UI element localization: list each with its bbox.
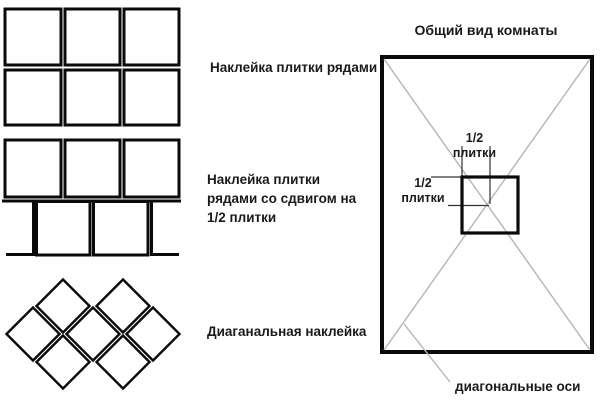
- pattern-offset-label: Наклейка плитки рядами со сдвигом на 1/2…: [207, 170, 356, 227]
- pattern-rows: [5, 9, 179, 125]
- diamond-tile: [127, 308, 180, 361]
- pattern-rows-label: Наклейка плитки рядами: [210, 58, 377, 77]
- diamond-tile: [37, 280, 90, 333]
- tile: [65, 70, 120, 125]
- half-tile-left-line1: 1/2: [395, 176, 451, 191]
- tile: [124, 70, 179, 125]
- tile: [5, 70, 61, 125]
- diamond-tile: [97, 336, 150, 389]
- tile: [65, 9, 120, 65]
- tile: [5, 9, 61, 65]
- tile: [94, 202, 149, 256]
- room-title: Общий вид комнаты: [406, 22, 566, 38]
- diamond-tile: [97, 280, 150, 333]
- pattern-offset-label-line2: рядами со сдвигом на: [207, 189, 356, 208]
- diamond-tile: [37, 336, 90, 389]
- tile: [37, 202, 91, 256]
- pattern-offset-label-line1: Наклейка плитки: [207, 170, 356, 189]
- tile: [124, 140, 179, 197]
- half-tile-top-line2: плитки: [447, 146, 502, 161]
- tile: [5, 140, 61, 197]
- half-tile-left-line2: плитки: [395, 191, 451, 206]
- tile: [124, 9, 179, 65]
- half-tile-top-line1: 1/2: [447, 131, 502, 146]
- diamond-tile: [67, 308, 120, 361]
- half-tile-label-left: 1/2 плитки: [395, 176, 451, 206]
- pattern-offset: [2, 140, 181, 256]
- tile: [65, 140, 120, 197]
- pattern-diagonal-label: Диаганальная наклейка: [207, 322, 366, 341]
- tile-layout-diagram: Наклейка плитки рядами Наклейка плитки р…: [0, 0, 600, 400]
- pattern-offset-label-line3: 1/2 плитки: [207, 208, 356, 227]
- room-schematic: [382, 57, 592, 382]
- half-tile-label-top: 1/2 плитки: [447, 131, 502, 161]
- pattern-diagonal: [7, 280, 180, 389]
- diamond-tile: [7, 308, 60, 361]
- diagonal-axes-label: диагональные оси: [455, 379, 580, 394]
